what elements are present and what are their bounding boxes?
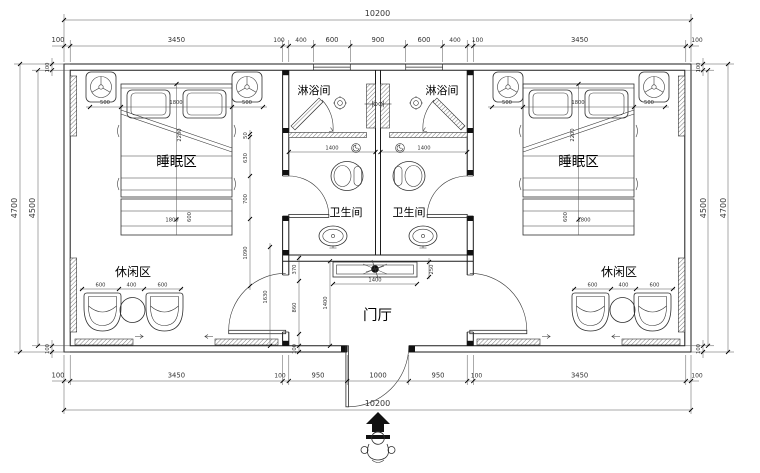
dim-text: 860 — [292, 303, 298, 313]
dimension-lines — [14, 14, 734, 414]
dim-text: 600 — [650, 283, 660, 289]
dim-text: 100 — [696, 344, 702, 354]
dim-text: 1800 — [165, 218, 178, 224]
dim-text: 1630 — [263, 290, 269, 303]
foyer — [333, 260, 417, 463]
dim-text: 100 — [471, 373, 483, 380]
label-sleep-left: 睡眠区 — [156, 154, 197, 170]
dim-text: 3450 — [168, 372, 185, 380]
dim-text: 250 — [429, 265, 435, 275]
dim-text: 1400 — [323, 296, 329, 309]
dim-text: 100 — [696, 63, 702, 73]
label-shower-right: 淋浴间 — [426, 84, 459, 97]
dim-text: 50 — [243, 132, 249, 139]
wall-convector-strips — [70, 76, 685, 345]
dim-text: 1000 — [369, 372, 386, 380]
room-door-right — [470, 273, 527, 333]
wc-door-left — [289, 176, 329, 217]
dim-text: 500 — [242, 100, 252, 106]
dim-text: 4700 — [10, 198, 19, 218]
dim-text: 1800 — [169, 100, 182, 106]
wc-door-right — [427, 176, 467, 217]
dim-text: 3450 — [571, 372, 588, 380]
dim-overall-bottom: 10200 — [365, 399, 390, 408]
leisure-right — [572, 293, 671, 331]
dim-text: 1400 — [417, 146, 430, 152]
dim-text: 600 — [326, 36, 339, 44]
dim-text: 500 — [644, 100, 654, 106]
dim-text: 700 — [243, 194, 249, 204]
dim-text: 100 — [274, 373, 286, 380]
dim-text: 100 — [691, 373, 703, 380]
right-room — [470, 72, 671, 334]
label-wc-right: 卫生间 — [393, 205, 426, 219]
dim-text: 100 — [45, 63, 51, 73]
dim-text: 2200 — [570, 128, 576, 141]
label-sleep-right: 睡眠区 — [558, 154, 599, 170]
dim-text: 950 — [432, 372, 445, 380]
label-shower-left: 淋浴间 — [298, 84, 331, 97]
dim-text: 1800 — [577, 218, 590, 224]
dim-text: 630 — [243, 153, 249, 163]
label-foyer: 门厅 — [363, 307, 392, 324]
dim-text: 3450 — [168, 36, 185, 44]
dim-text: 950 — [312, 372, 325, 380]
ceiling-fan-icon — [363, 260, 387, 278]
dim-text: 1800 — [571, 100, 584, 106]
shower-partition-pier — [367, 84, 376, 128]
label-leisure-left: 休闲区 — [115, 265, 151, 279]
dim-text: 600 — [588, 283, 598, 289]
dim-text: 4500 — [699, 198, 708, 218]
dim-text: 600 — [187, 212, 193, 222]
label-leisure-right: 休闲区 — [601, 265, 637, 279]
dim-text: 100 — [45, 344, 51, 354]
shower-rooms — [289, 96, 467, 138]
dim-text: 600 — [563, 212, 569, 222]
dim-text: 3450 — [571, 36, 588, 44]
dim-text: 600 — [418, 36, 431, 44]
dim-text: 100 — [52, 36, 65, 44]
dim-overall-top: 10200 — [365, 9, 390, 18]
wc-area — [289, 144, 467, 248]
floor-plan-canvas: 10200 100 3450 100 400 600 900 600 400 1… — [0, 0, 760, 473]
dim-text: 100 — [472, 37, 484, 44]
top-windows — [313, 64, 442, 70]
dim-text: 900 — [372, 36, 385, 44]
dim-text: 600 — [96, 283, 106, 289]
floor-plan-drawing: 10200 100 3450 100 400 600 900 600 400 1… — [0, 0, 760, 473]
dim-text: 400 — [295, 37, 307, 44]
dim-text: 2200 — [177, 128, 183, 141]
dim-text: 400 — [449, 37, 461, 44]
dim-text: 4700 — [719, 198, 728, 218]
dim-text: 500 — [502, 100, 512, 106]
dim-text: 400 — [619, 283, 629, 289]
dim-text: 100 — [273, 37, 285, 44]
dim-text: 500 — [100, 100, 110, 106]
dimension-text: 10200 100 3450 100 400 600 900 600 400 1… — [10, 9, 728, 408]
dim-text: 600 — [158, 283, 168, 289]
dim-text: 100 — [52, 372, 65, 380]
dim-text: 1400 — [325, 146, 338, 152]
dim-text: 370 — [292, 265, 298, 275]
dim-text: 100 — [292, 344, 298, 354]
dim-text: 1400 — [368, 278, 381, 284]
dim-text: 4500 — [28, 198, 37, 218]
label-wc-left: 卫生间 — [330, 205, 363, 219]
dim-text: 100 — [691, 37, 703, 44]
entry-arrow-icon — [366, 412, 390, 439]
shower-door-right — [433, 98, 465, 130]
shower-door-left — [291, 98, 323, 130]
dim-text: 400 — [127, 283, 137, 289]
left-room — [84, 72, 286, 334]
shower-partition-pier — [381, 84, 390, 128]
dim-text: 1090 — [243, 246, 249, 259]
room-door-left — [229, 273, 286, 333]
leisure-left — [84, 293, 183, 331]
